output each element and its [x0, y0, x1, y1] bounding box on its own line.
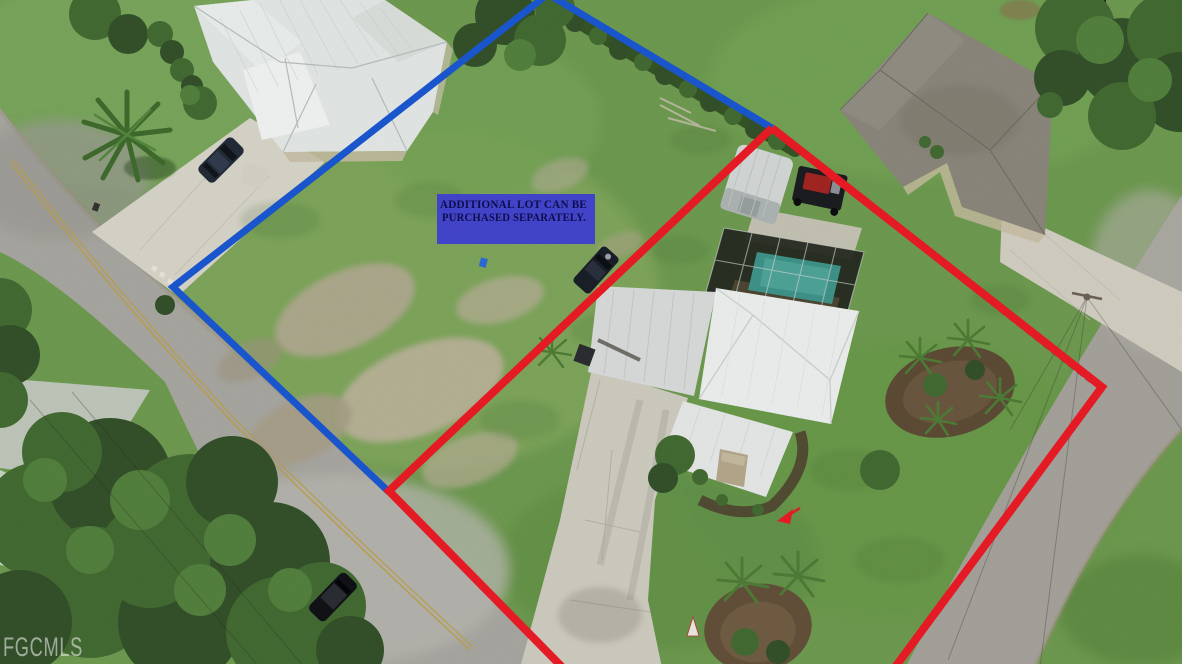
aerial-scene: ADDITIONAL LOT CAN BE PURCHASED SEPARATE… [0, 0, 1182, 664]
aerial-photo: ADDITIONAL LOT CAN BE PURCHASED SEPARATE… [0, 0, 1182, 664]
photo-grain [0, 0, 1182, 664]
